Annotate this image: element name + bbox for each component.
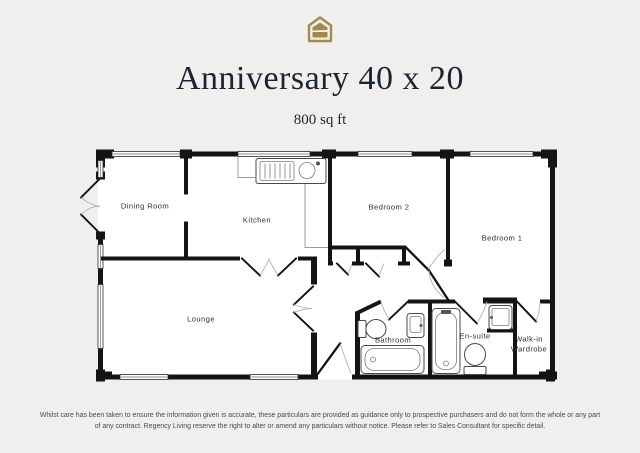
floorplan-svg: Dining Room Kitchen Bedroom 2 Bedroom 1 …: [70, 140, 580, 390]
room-label-kitchen: Kitchen: [243, 216, 271, 225]
house-logo-icon: [300, 12, 340, 48]
room-label-ensuite: En-suite: [459, 332, 490, 341]
ensuite-basin-icon: [489, 306, 512, 330]
brand-logo: [0, 12, 640, 53]
room-label-wardrobe-1: Walk-in: [515, 335, 543, 344]
room-label-bathroom: Bathroom: [375, 336, 411, 345]
room-label-dining: Dining Room: [121, 202, 169, 211]
basin-icon: [407, 314, 424, 338]
bath-icon: [361, 346, 424, 374]
disclaimer-text: Whilst care has been taken to ensure the…: [30, 411, 610, 432]
french-door-leaf: [81, 215, 100, 234]
room-label-lounge: Lounge: [187, 315, 215, 324]
room-label-wardrobe-2: Wardrobe: [511, 345, 547, 354]
ensuite-toilet-icon: [464, 344, 486, 375]
ensuite-bath-icon: [432, 309, 460, 374]
front-door-threshold: [318, 375, 352, 380]
french-door-leaf: [81, 179, 100, 198]
room-label-bedroom2: Bedroom 2: [369, 203, 410, 212]
disclaimer-line-2: of any contract. Regency Living reserve …: [30, 422, 610, 433]
kitchen-sink-icon: [256, 159, 326, 184]
plan-footprint: [98, 152, 555, 380]
page-title: Anniversary 40 x 20: [0, 60, 640, 98]
room-label-bedroom1: Bedroom 1: [482, 234, 523, 243]
disclaimer-line-1: Whilst care has been taken to ensure the…: [30, 411, 610, 422]
floorplan-page: Anniversary 40 x 20 800 sq ft: [0, 0, 640, 453]
page-subtitle: 800 sq ft: [0, 112, 640, 129]
